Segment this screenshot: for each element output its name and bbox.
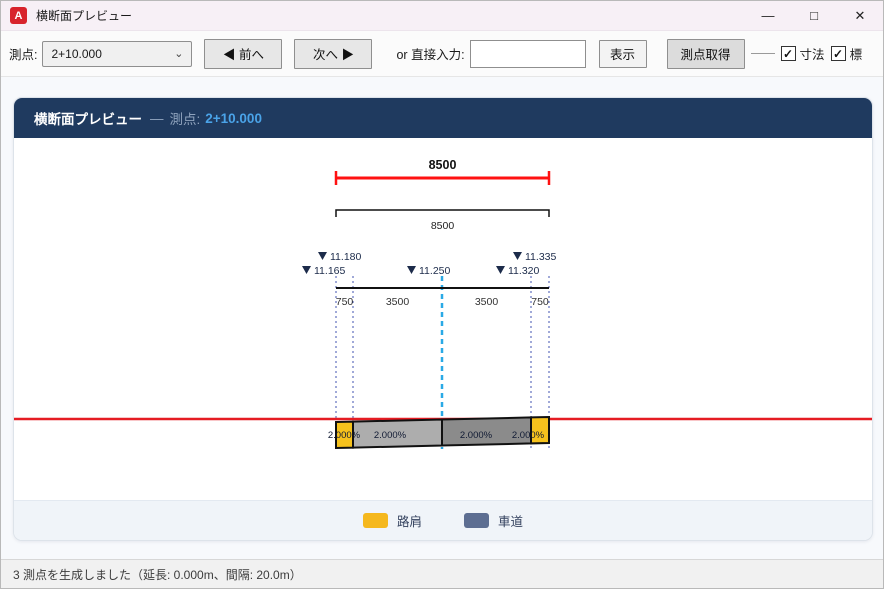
elevation-checkbox-label: 標 <box>850 44 863 63</box>
station-label: 測点: <box>9 44 37 63</box>
dimension-checkbox[interactable]: ✓ <box>781 46 796 61</box>
shoulder-swatch-icon <box>363 513 388 528</box>
width-label: 3500 <box>475 296 499 308</box>
app-icon-letter: A <box>15 10 23 22</box>
titlebar: A 横断面プレビュー — □ ✕ <box>1 1 883 31</box>
panel-header: 横断面プレビュー — 測点: 2+10.000 <box>14 98 872 138</box>
preview-panel: 横断面プレビュー — 測点: 2+10.000 8500850011.16511… <box>13 97 873 541</box>
status-message: 3 測点を生成しました（延長: 0.000m、間隔: 20.0m） <box>13 566 302 583</box>
legend-item-roadway: 車道 <box>464 511 523 530</box>
legend: 路肩 車道 <box>14 500 872 540</box>
statusbar: 3 測点を生成しました（延長: 0.000m、間隔: 20.0m） <box>1 559 883 588</box>
bracket-dimension <box>336 210 549 217</box>
slope-label: 2.000% <box>512 430 545 441</box>
elevation-label: 11.250 <box>419 265 450 277</box>
elevation-marker-icon <box>302 266 311 274</box>
toolbar: 測点: 2+10.000 ⌄ ◀ 前へ 次へ ▶ or 直接入力: 表示 測点取… <box>1 31 883 77</box>
dimension-checkbox-label: 寸法 <box>800 44 825 63</box>
app-icon: A <box>10 7 27 24</box>
minimize-button[interactable]: — <box>745 1 791 30</box>
next-button[interactable]: 次へ ▶ <box>294 39 372 69</box>
roadway-swatch-icon <box>464 513 489 528</box>
elevation-label: 11.320 <box>508 265 539 277</box>
elevation-marker-icon <box>407 266 416 274</box>
slope-label: 2.000% <box>460 430 493 441</box>
bracket-dimension-label: 8500 <box>431 220 455 232</box>
shoulder-legend-label: 路肩 <box>397 511 422 530</box>
elevation-label: 11.335 <box>525 251 556 263</box>
elevation-marker-icon <box>513 252 522 260</box>
close-button[interactable]: ✕ <box>837 1 883 30</box>
width-label: 750 <box>336 296 354 308</box>
window-title: 横断面プレビュー <box>36 7 132 24</box>
elevation-checkbox-group: ✓ 標 <box>831 44 863 63</box>
panel-title: 横断面プレビュー <box>34 108 142 128</box>
cross-section-canvas: 8500850011.16511.18011.25011.32011.33575… <box>14 138 872 500</box>
slope-label: 2.000% <box>374 430 407 441</box>
width-label: 3500 <box>386 296 410 308</box>
width-label: 750 <box>531 296 549 308</box>
roadway-legend-label: 車道 <box>498 511 523 530</box>
chevron-down-icon: ⌄ <box>174 47 183 60</box>
window-controls: — □ ✕ <box>745 1 883 30</box>
elevation-label: 11.180 <box>330 251 361 263</box>
get-station-button[interactable]: 測点取得 <box>667 39 745 69</box>
elevation-label: 11.165 <box>314 265 345 277</box>
previous-button[interactable]: ◀ 前へ <box>204 39 282 69</box>
panel-header-separator: — <box>150 111 164 126</box>
slope-label: 2.000% <box>328 430 361 441</box>
show-button[interactable]: 表示 <box>599 40 647 68</box>
elevation-marker-icon <box>318 252 327 260</box>
cross-section-drawing: 8500850011.16511.18011.25011.32011.33575… <box>14 138 872 500</box>
toolbar-separator-line <box>751 53 775 54</box>
panel-station-label: 測点: <box>170 108 201 128</box>
maximize-button[interactable]: □ <box>791 1 837 30</box>
dimension-checkbox-group: ✓ 寸法 <box>781 44 825 63</box>
station-select[interactable]: 2+10.000 ⌄ <box>42 41 192 67</box>
red-dimension-label: 8500 <box>429 158 457 172</box>
main-area: 横断面プレビュー — 測点: 2+10.000 8500850011.16511… <box>1 77 883 559</box>
direct-input-label: or 直接入力: <box>396 44 464 63</box>
panel-station-value: 2+10.000 <box>205 111 262 126</box>
station-select-value: 2+10.000 <box>51 47 101 61</box>
elevation-checkbox[interactable]: ✓ <box>831 46 846 61</box>
direct-input-field[interactable] <box>470 40 586 68</box>
elevation-marker-icon <box>496 266 505 274</box>
legend-item-shoulder: 路肩 <box>363 511 422 530</box>
